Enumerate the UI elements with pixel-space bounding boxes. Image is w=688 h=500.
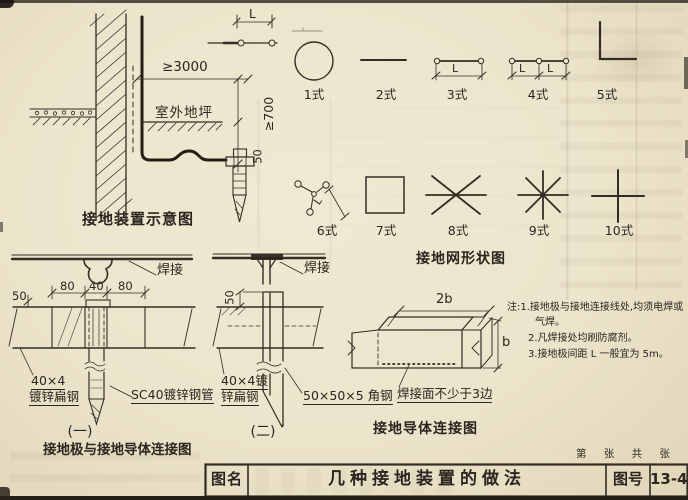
dim-50-conn2: 50	[224, 283, 237, 311]
grid-shape-3-line-2rods	[432, 58, 486, 80]
weld-label-conn2: 焊接	[304, 262, 330, 277]
shape-label-5: 5式	[587, 88, 627, 102]
flat-steel-label-line2-conn1: 镀锌扁钢	[29, 390, 79, 406]
grid-shape-4-line-3rods	[508, 58, 570, 80]
dim-l-shape3: L	[452, 63, 458, 75]
shape-label-6: 6式	[307, 224, 347, 238]
title-bar-name-label: 图名	[206, 471, 248, 488]
conductor-joint-drawing	[348, 306, 502, 387]
pipe-label: SC40镀锌钢管	[131, 388, 214, 404]
dim-l-shape4a: L	[519, 63, 525, 75]
grid-shape-9-star	[518, 171, 568, 219]
outdoor-ground-label: 室外地坪	[155, 106, 213, 121]
conn2-number: (二)	[241, 425, 285, 441]
dim-label-3000: ≥3000	[162, 60, 208, 75]
spacing-dim-label: L	[249, 8, 256, 21]
shape-label-1: 1式	[294, 88, 334, 102]
dim-b: b	[502, 336, 510, 351]
drawing-title: 几种接地装置的做法	[248, 470, 606, 489]
dim-l-shape4b: L	[547, 63, 553, 75]
shape-label-2: 2式	[366, 88, 406, 102]
grid-shape-1-circle	[295, 42, 333, 80]
conductor-joint-caption: 接地导体连接图	[373, 422, 478, 438]
dim-80-right: 80	[118, 280, 133, 293]
grounding-conductor	[133, 17, 226, 160]
shape-label-9: 9式	[519, 224, 559, 238]
conn1-number: (一)	[58, 425, 102, 441]
note-line-1: 注:1.接地极与接地连接线处,均须电焊或	[507, 302, 683, 313]
rod-spacing-detail	[208, 15, 277, 46]
dim-80-left: 80	[60, 280, 75, 293]
weld-label-conn1: 焊接	[157, 264, 183, 279]
shape-label-3: 3式	[437, 88, 477, 102]
dim-label-50-schematic: 50	[252, 142, 265, 170]
note-line-2: 气焊。	[535, 317, 565, 328]
dim-50-conn1: 50	[12, 290, 27, 303]
shape-label-8: 8式	[438, 224, 478, 238]
grid-shape-5-corner	[600, 22, 636, 59]
grid-shape-10-plus	[592, 170, 644, 222]
weld-note-label: 焊接面不少于3边	[397, 387, 492, 403]
flat-steel-label-line1-conn2: 40×4镀	[221, 374, 268, 390]
title-bar-number-label: 图号	[606, 471, 650, 488]
drawing-number: 13-40	[650, 471, 688, 488]
conn1-caption: 接地极与接地导体连接图	[43, 443, 192, 458]
shape-label-7: 7式	[366, 224, 406, 238]
sheet-counter: 第 张 共 张	[576, 449, 670, 461]
shape-label-10: 10式	[597, 224, 641, 238]
note-line-4: 3.接地极间距 L 一般宜为 5m。	[528, 349, 669, 360]
flat-steel-label-line2-conn2: 锌扁钢	[221, 390, 259, 406]
wall-section-drawing	[90, 10, 132, 219]
indoor-ground-hatch	[30, 109, 96, 125]
scan-artifact-line	[292, 28, 322, 31]
dim-40: 40	[89, 280, 104, 293]
scanned-drawing-page: ≥3000 室外地坪 ≥700 50 接地装置示意图 L 1式 2式 3式 4式…	[0, 0, 688, 500]
outdoor-ground-hatch	[142, 122, 222, 131]
note-line-3: 2.凡焊接处均刷防腐剂。	[528, 333, 638, 344]
angle-steel-label: 50×50×5 角钢	[303, 389, 393, 405]
schematic-caption: 接地装置示意图	[82, 211, 194, 228]
grid-shape-8-x-cross	[426, 176, 486, 214]
shape-label-4: 4式	[518, 88, 558, 102]
grid-shapes-caption: 接地网形状图	[416, 252, 506, 268]
dim-2b: 2b	[436, 293, 453, 308]
grid-shape-7-square	[366, 177, 404, 213]
flat-steel-label-line1-conn1: 40×4	[31, 374, 65, 390]
drawing-canvas	[0, 0, 688, 500]
dim-label-700: ≥700	[262, 92, 276, 136]
